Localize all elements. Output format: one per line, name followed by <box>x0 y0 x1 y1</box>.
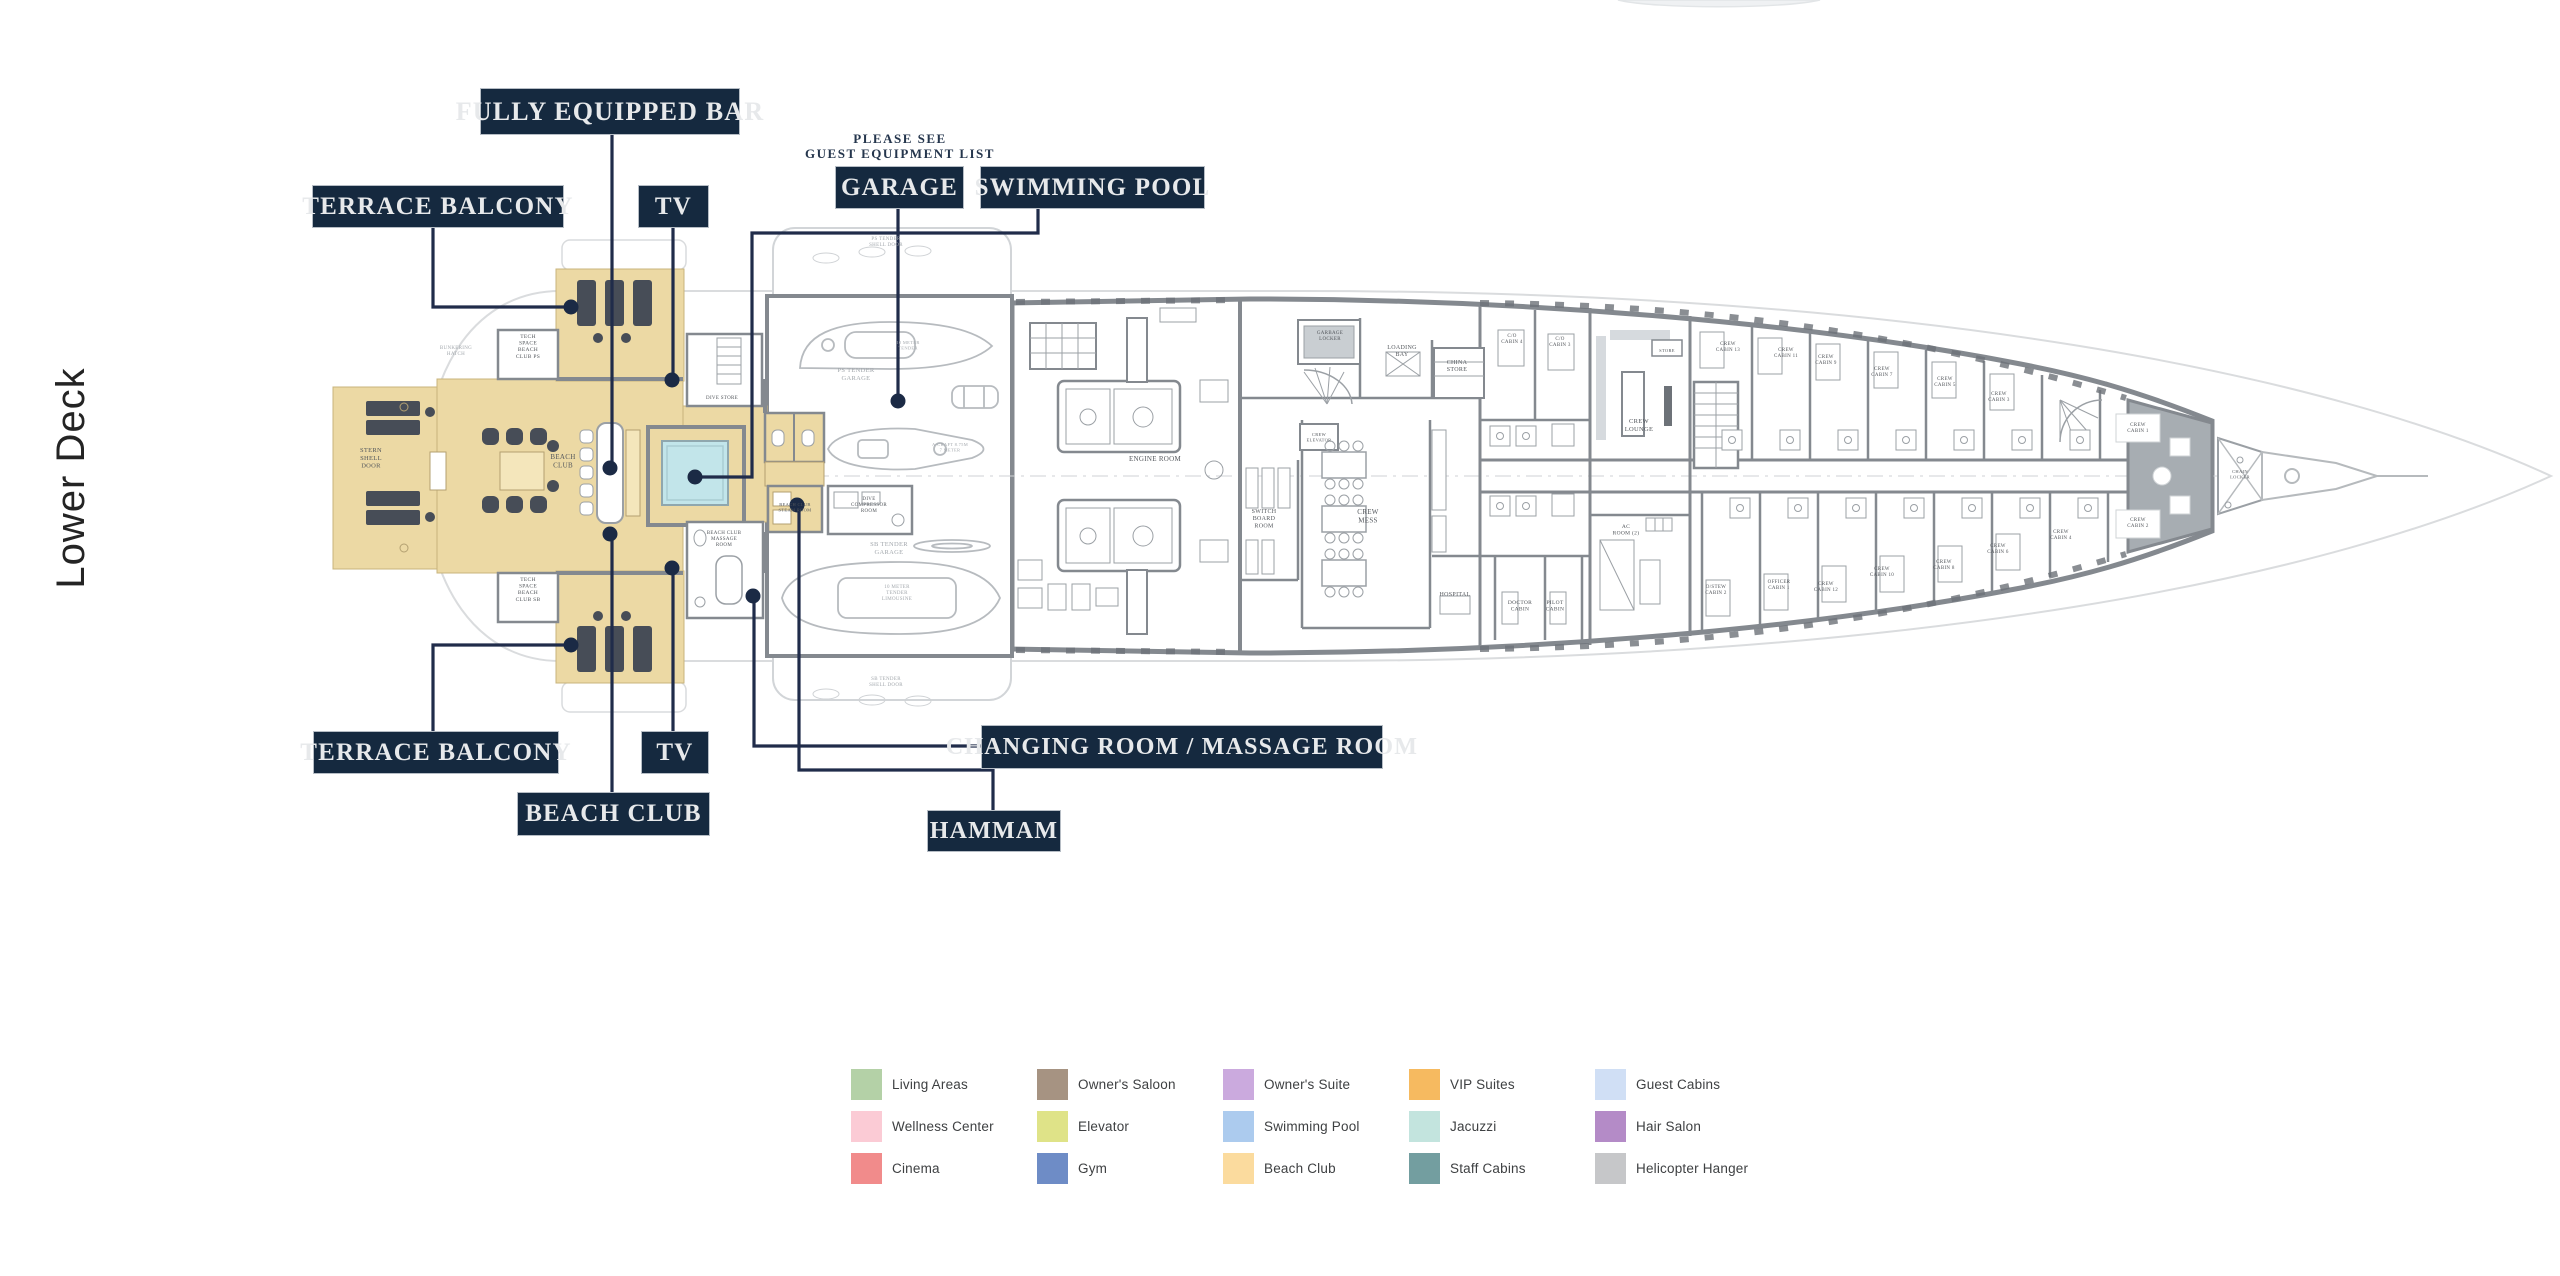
legend-item: Hair Salon <box>1595 1111 1781 1142</box>
plan-room-label: CHAINLOCKER <box>2230 469 2250 479</box>
plan-room-label: GARBAGELOCKER <box>1317 331 1343 342</box>
plan-room-label: SWITCHBOARDROOM <box>1252 509 1277 529</box>
legend-item: Owner's Saloon <box>1037 1069 1223 1100</box>
legend-item: Staff Cabins <box>1409 1153 1595 1184</box>
guest-equipment-note: PLEASE SEE GUEST EQUIPMENT LIST <box>795 131 1005 161</box>
page-title: Lower Deck <box>41 323 101 633</box>
note-line-2: GUEST EQUIPMENT LIST <box>795 146 1005 161</box>
legend-item: Living Areas <box>851 1069 1037 1100</box>
legend-swatch <box>1409 1153 1440 1184</box>
plan-room-label: SB TENDERGARAGE <box>870 541 908 556</box>
legend-label: Staff Cabins <box>1450 1161 1526 1176</box>
legend-item: Helicopter Hanger <box>1595 1153 1781 1184</box>
plan-room-label: CREWCABIN 3 <box>1988 392 2010 403</box>
plan-room-label: PS TENDERGARAGE <box>837 367 874 382</box>
legend-label: Guest Cabins <box>1636 1077 1720 1092</box>
plan-room-label: CREWCABIN 1 <box>2127 423 2149 434</box>
legend-item: Cinema <box>851 1153 1037 1184</box>
legend-swatch <box>1409 1111 1440 1142</box>
legend-label: Elevator <box>1078 1119 1129 1134</box>
legend-item: Swimming Pool <box>1223 1111 1409 1142</box>
plan-room-label: BEACH CLUBSTEAM ROOM <box>779 502 812 512</box>
callout-terrace-balcony-top: TERRACE BALCONY <box>312 185 564 228</box>
legend-item: Jacuzzi <box>1409 1111 1595 1142</box>
plan-room-label: PS TENDERSHELL DOOR <box>869 237 903 248</box>
legend-item: Owner's Suite <box>1223 1069 1409 1100</box>
legend-swatch <box>1037 1069 1068 1100</box>
plan-room-label: CREWCABIN 8 <box>1933 560 1955 571</box>
callout-garage: GARAGE <box>835 166 964 209</box>
callout-beach-club: BEACH CLUB <box>517 792 710 836</box>
legend-label: Living Areas <box>892 1077 968 1092</box>
plan-room-label: CREWCABIN 9 <box>1815 355 1837 366</box>
plan-room-label: STERNSHELLDOOR <box>360 447 382 470</box>
legend-item: Wellness Center <box>851 1111 1037 1142</box>
callout-tv-bottom: TV <box>641 731 709 774</box>
plan-room-label: CREWMESS <box>1357 508 1379 524</box>
legend-swatch <box>1223 1069 1254 1100</box>
legend-item: Gym <box>1037 1153 1223 1184</box>
cropped-deck-sliver <box>1618 0 1820 7</box>
legend-item: VIP Suites <box>1409 1069 1595 1100</box>
legend-label: Owner's Saloon <box>1078 1077 1176 1092</box>
plan-room-label: OFFICERCABIN 1 <box>1768 580 1791 591</box>
plan-room-label: CHINASTORE <box>1447 360 1468 373</box>
legend-swatch <box>851 1111 882 1142</box>
legend-swatch <box>851 1153 882 1184</box>
legend-swatch <box>1037 1111 1068 1142</box>
callout-terrace-balcony-bottom: TERRACE BALCONY <box>313 731 559 774</box>
bulwark-flap-bottom <box>562 682 686 712</box>
legend-label: Gym <box>1078 1161 1107 1176</box>
note-line-1: PLEASE SEE <box>795 131 1005 146</box>
legend-swatch <box>1037 1153 1068 1184</box>
legend-label: VIP Suites <box>1450 1077 1515 1092</box>
plan-room-label: STORE <box>1659 348 1675 353</box>
legend-label: Swimming Pool <box>1264 1119 1360 1134</box>
plan-room-label: BUNKERINGHATCH <box>440 346 472 357</box>
plan-room-label: PILOTCABIN <box>1546 600 1565 613</box>
plan-room-label: CREWLOUNGE <box>1625 418 1654 433</box>
legend-label: Jacuzzi <box>1450 1119 1496 1134</box>
legend-label: Owner's Suite <box>1264 1077 1350 1092</box>
plan-room-label: HOSPITAL <box>1440 592 1471 598</box>
plan-room-label: SB TENDERSHELL DOOR <box>869 677 903 688</box>
plan-room-label: DOCTORCABIN <box>1508 600 1532 613</box>
legend-swatch <box>851 1069 882 1100</box>
legend-swatch <box>1223 1153 1254 1184</box>
callout-hammam: HAMMAM <box>927 810 1061 852</box>
legend-item: Elevator <box>1037 1111 1223 1142</box>
plan-room-label: CREWCABIN 4 <box>2050 530 2072 541</box>
plan-room-label: CREWCABIN 7 <box>1871 367 1893 378</box>
callout-fully-equipped-bar: FULLY EQUIPPED BAR <box>480 88 740 135</box>
plan-room-label: CREWCABIN 5 <box>1934 377 1956 388</box>
legend-swatch <box>1595 1111 1626 1142</box>
callout-tv-top: TV <box>638 185 709 228</box>
legend-label: Hair Salon <box>1636 1119 1701 1134</box>
legend-swatch <box>1409 1069 1440 1100</box>
callout-swimming-pool: SWIMMING POOL <box>980 166 1205 209</box>
plan-room-label: DIVE STORE <box>706 396 738 401</box>
legend-item: Guest Cabins <box>1595 1069 1781 1100</box>
bow-section <box>2116 400 2428 552</box>
legend-label: Wellness Center <box>892 1119 994 1134</box>
callout-changing-massage-room: CHANGING ROOM / MASSAGE ROOM <box>981 725 1383 769</box>
legend-swatch <box>1223 1111 1254 1142</box>
legend-label: Beach Club <box>1264 1161 1336 1176</box>
plan-room-label: O/STEWCABIN 2 <box>1705 585 1727 596</box>
legend: Living Areas Wellness Center Cinema Owne… <box>851 1069 1781 1184</box>
plan-room-label: 10 METERTENDER <box>896 340 919 350</box>
legend-swatch <box>1595 1069 1626 1100</box>
plan-room-label: BEACHCLUB <box>550 453 575 469</box>
bulwark-flap-top <box>562 240 686 270</box>
plan-room-label: CREWCABIN 6 <box>1987 544 2009 555</box>
legend-swatch <box>1595 1153 1626 1184</box>
legend-item: Beach Club <box>1223 1153 1409 1184</box>
legend-label: Helicopter Hanger <box>1636 1161 1748 1176</box>
legend-label: Cinema <box>892 1161 940 1176</box>
plan-room-label: 10 METERTENDERLIMOUSINE <box>882 585 912 602</box>
plan-room-label: CREWCABIN 2 <box>2127 518 2149 529</box>
plan-room-label: ENGINE ROOM <box>1129 455 1182 463</box>
page: STERNSHELLDOORBUNKERINGHATCHTECHSPACEBEA… <box>0 0 2560 1276</box>
